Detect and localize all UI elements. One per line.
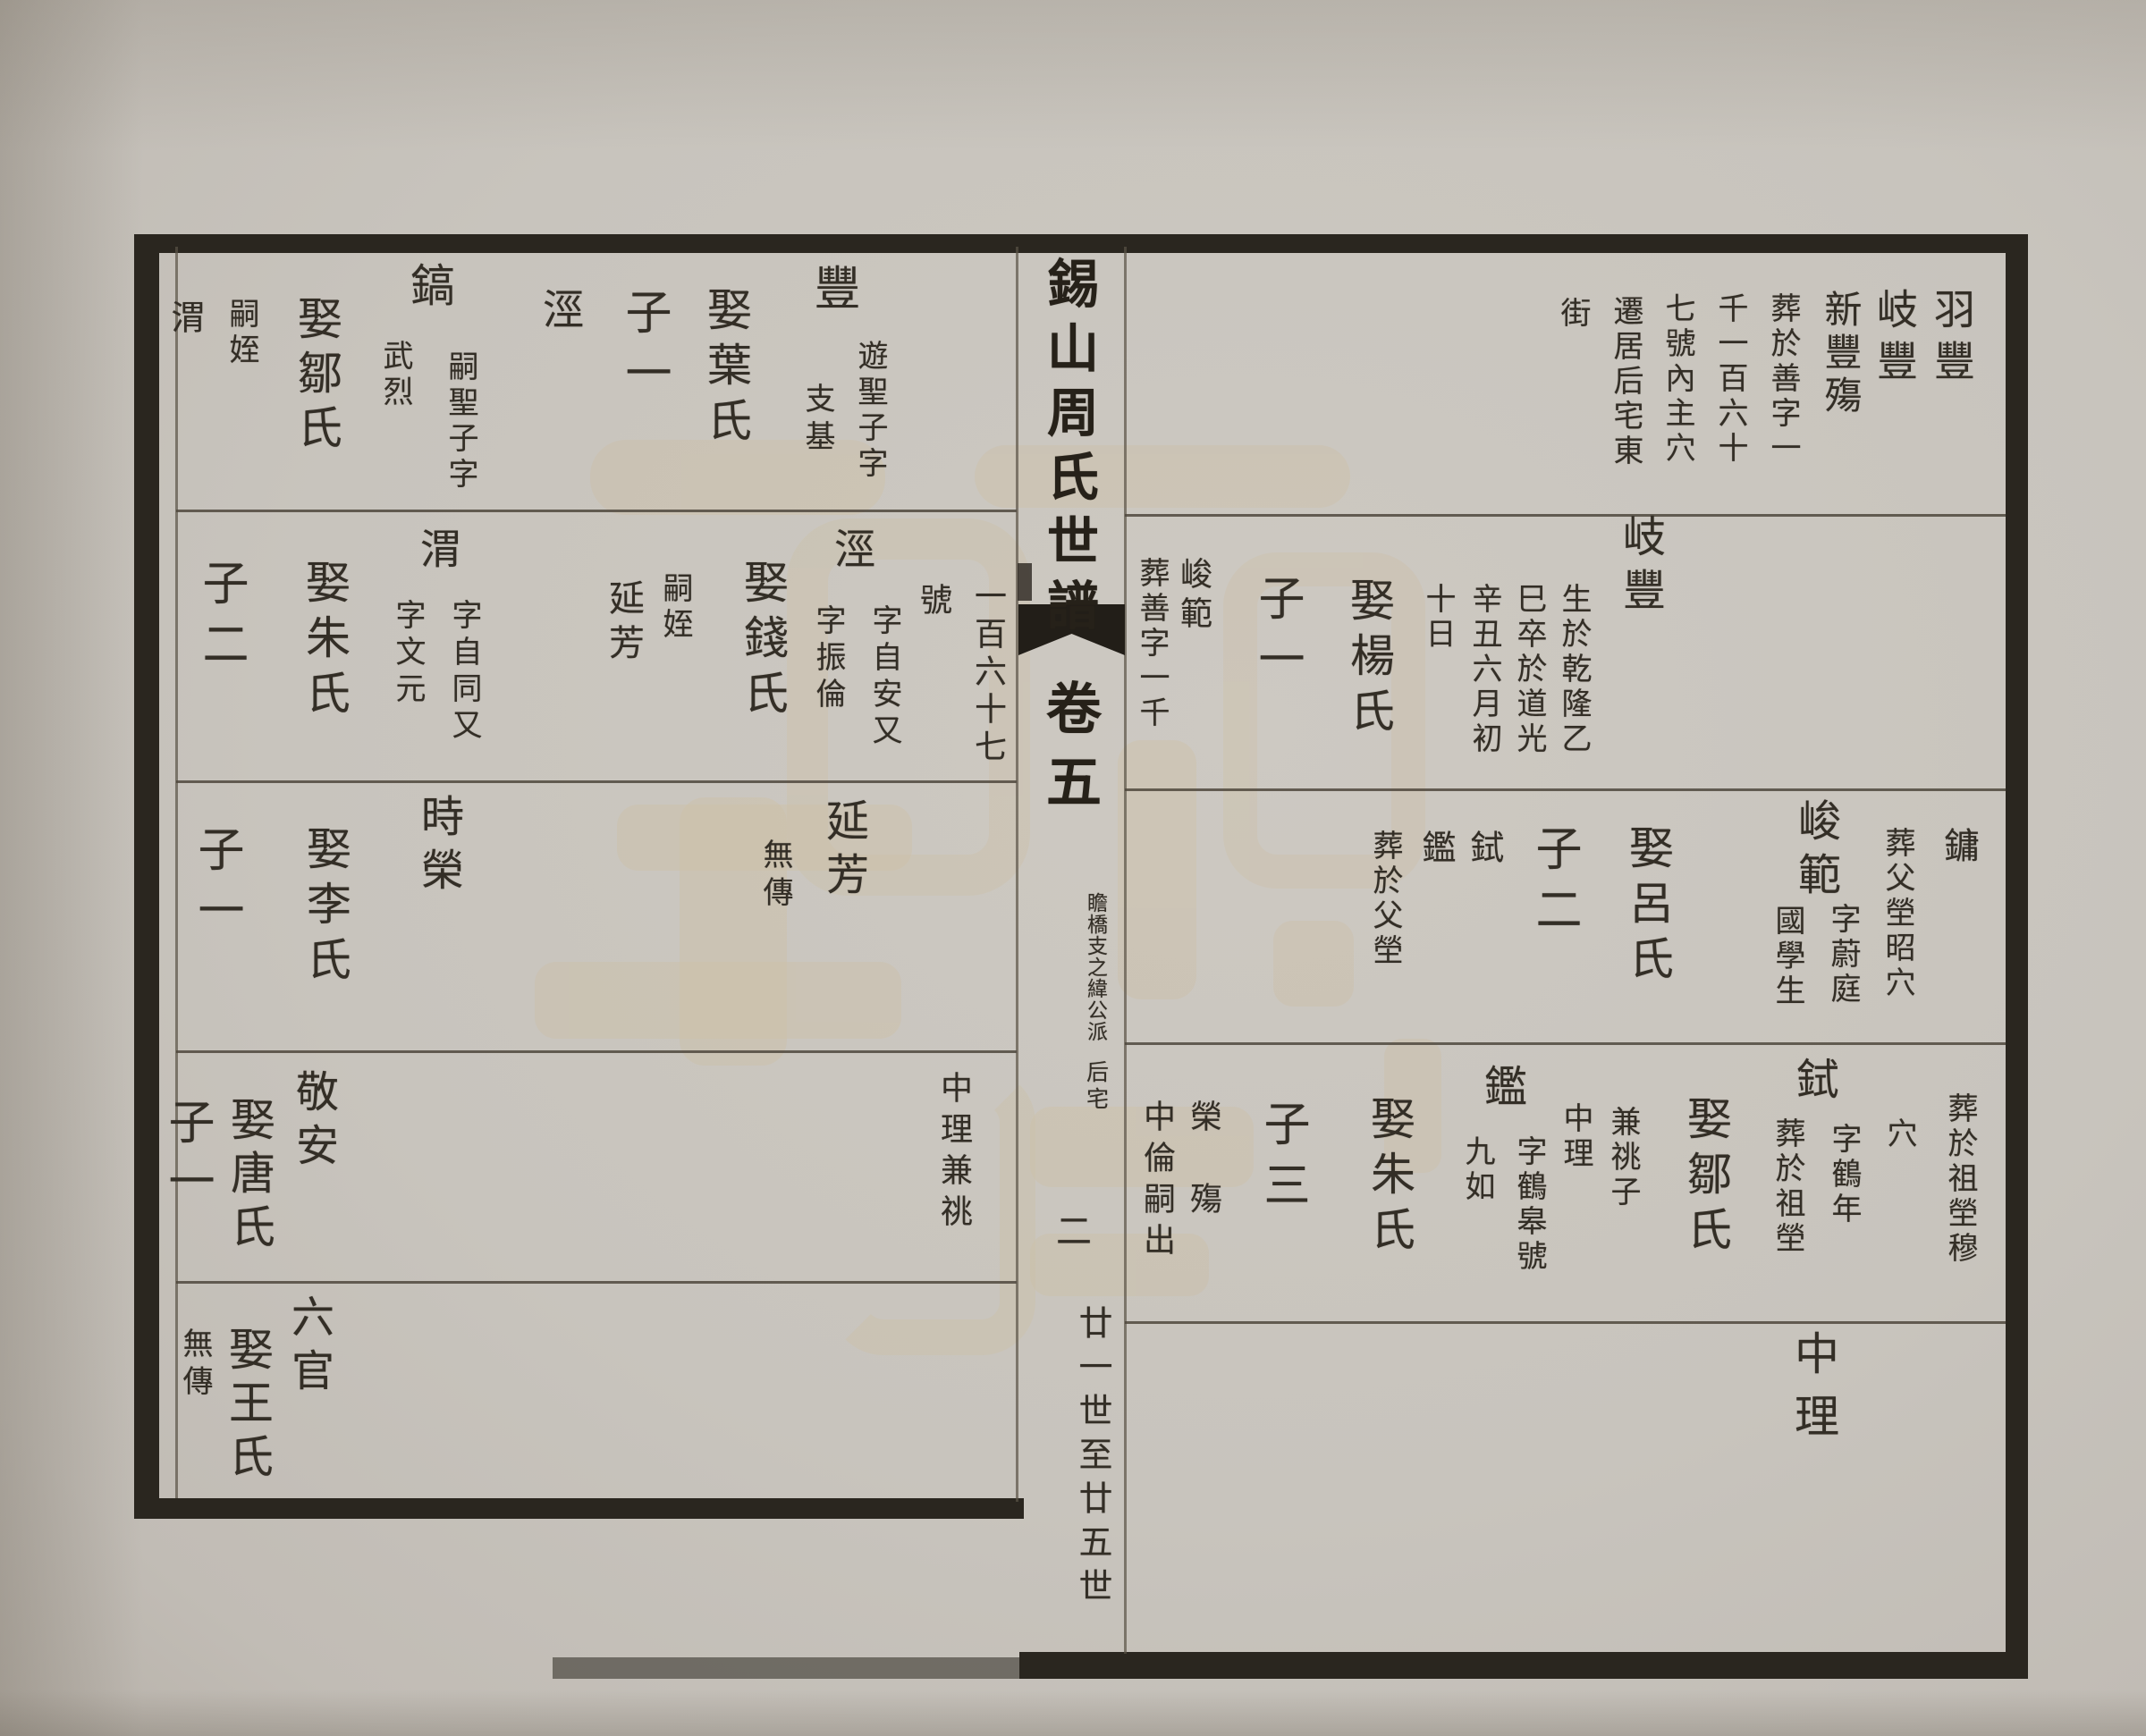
left-text-column-6: 鎬 (407, 262, 452, 307)
right-text-column-0: 羽豐 (1931, 288, 1972, 392)
right-row-divider-3 (1125, 1042, 2006, 1045)
left-text-column-13: 字自安又 (868, 604, 899, 751)
left-text-column-24: 無傳 (759, 839, 790, 914)
right-text-column-18: 葬父塋昭穴 (1881, 827, 1912, 1001)
left-row-divider-4 (176, 1281, 1017, 1284)
right-row-divider-4 (1125, 1321, 2006, 1324)
left-text-column-1: 遊聖子字 (854, 340, 884, 483)
left-text-column-8: 武烈 (379, 340, 410, 411)
left-text-column-34: 無傳 (179, 1327, 209, 1403)
right-text-column-31: 葬於祖塋 (1771, 1117, 1802, 1257)
spine-text-column-6: 一百六十七 (972, 579, 1004, 767)
right-text-column-21: 國學生 (1771, 905, 1802, 1009)
left-text-column-31: 子一 (163, 1098, 209, 1216)
right-text-column-20: 字蔚庭 (1827, 903, 1857, 1007)
left-text-column-5: 涇 (539, 288, 580, 329)
spine-text-column-0: 錫山周氏世譜 (1042, 257, 1094, 643)
right-text-column-7: 街 (1557, 297, 1587, 327)
genealogy-book-spread: 錫山周氏世譜卷五瞻橋支之緯公派后宅二廿一世至廿五世一百六十七號 豐遊聖子字支基娶… (0, 0, 2146, 1736)
left-text-column-32: 六官 (286, 1294, 329, 1402)
right-text-column-39: 子三 (1258, 1100, 1305, 1221)
left-text-column-0: 豐 (808, 264, 855, 310)
right-text-column-37: 九如 (1461, 1135, 1491, 1205)
spine-left-rule (1016, 247, 1018, 1502)
right-text-column-19: 峻範 (1793, 798, 1836, 906)
right-text-column-5: 七號內主穴 (1661, 292, 1692, 467)
left-text-column-27: 子一 (192, 825, 239, 947)
right-text-column-33: 兼祧子 (1607, 1106, 1637, 1210)
spine-text-column-1: 卷五 (1040, 679, 1095, 826)
left-text-column-21: 娶朱氏 (302, 559, 347, 725)
right-text-column-12: 十日 (1422, 583, 1452, 653)
left-text-column-7: 嗣聖子字 (444, 350, 475, 493)
right-text-column-17: 鏞 (1940, 827, 1976, 863)
right-text-column-9: 生於乾隆乙 (1558, 583, 1588, 757)
right-text-column-40: 榮殤 (1187, 1100, 1220, 1264)
left-text-column-29: 敬安 (291, 1069, 334, 1176)
left-text-column-15: 娶錢氏 (740, 559, 785, 725)
right-text-column-36: 字鶴皋號 (1513, 1135, 1543, 1275)
right-text-column-14: 子一 (1253, 574, 1299, 695)
left-text-column-3: 娶葉氏 (704, 286, 748, 452)
right-text-column-6: 遷居后宅東 (1609, 295, 1640, 469)
left-text-column-4: 子一 (620, 288, 666, 409)
left-row-divider-2 (176, 780, 1017, 783)
left-page-inner-left-line (175, 247, 178, 1509)
left-page-bottom-border (134, 1498, 1024, 1519)
right-text-column-29: 鉽 (1791, 1057, 1834, 1100)
right-text-column-35: 鑑 (1479, 1064, 1522, 1107)
right-row-divider-1 (1125, 514, 2006, 517)
frame-top-border (139, 234, 2027, 253)
top-paper-shadow (0, 0, 2146, 152)
right-text-column-13: 娶楊氏 (1347, 577, 1391, 743)
left-text-column-11: 渭 (167, 299, 201, 333)
right-text-column-24: 鉽 (1466, 830, 1500, 864)
frame-left-border (134, 234, 159, 1518)
right-text-column-10: 巳卒於道光 (1513, 583, 1543, 757)
left-text-column-23: 延芳 (821, 798, 864, 906)
spine-text-column-3: 后宅 (1085, 1060, 1107, 1114)
left-text-column-9: 娶鄒氏 (294, 295, 339, 459)
left-text-column-10: 嗣姪 (225, 298, 256, 369)
left-text-column-28: 中理兼祧 (938, 1071, 970, 1235)
right-row-divider-2 (1125, 788, 2006, 791)
left-text-column-14: 字振倫 (812, 604, 842, 714)
right-text-column-32: 娶鄒氏 (1684, 1095, 1728, 1261)
right-text-column-15: 峻範 (1178, 557, 1210, 636)
spine-text-column-7: 號 (917, 583, 950, 615)
right-text-column-38: 娶朱氏 (1367, 1095, 1412, 1261)
left-text-column-22: 子二 (197, 559, 243, 680)
right-text-column-34: 中理 (1559, 1102, 1590, 1172)
right-text-column-23: 子二 (1530, 824, 1576, 946)
spine-right-rule (1124, 247, 1127, 1654)
left-text-column-26: 娶李氏 (303, 825, 348, 991)
right-page-bottom-border (1019, 1652, 2028, 1679)
right-text-column-25: 鑑 (1418, 830, 1452, 864)
bottom-paper-shadow (0, 1690, 2146, 1736)
right-text-column-42: 中理 (1791, 1330, 1836, 1455)
left-text-column-17: 延芳 (605, 579, 641, 669)
left-text-column-30: 娶唐氏 (227, 1096, 272, 1257)
left-text-column-33: 娶王氏 (225, 1326, 270, 1487)
left-text-column-19: 字自同又 (448, 599, 478, 746)
left-row-divider-1 (176, 510, 1017, 512)
right-text-column-28: 穴 (1883, 1117, 1914, 1148)
left-row-divider-3 (176, 1050, 1017, 1053)
right-text-column-22: 娶呂氏 (1626, 824, 1670, 990)
right-text-column-11: 辛丑六月初 (1468, 583, 1499, 757)
right-text-column-16: 葬善字一千 (1136, 557, 1166, 731)
spine-text-column-5: 廿一世至廿五世 (1075, 1305, 1109, 1612)
right-text-column-27: 葬於祖塋穆 (1944, 1092, 1974, 1267)
right-text-column-26: 葬於父塋 (1369, 830, 1399, 969)
right-text-column-30: 字鶴年 (1828, 1123, 1858, 1227)
left-text-column-12: 涇 (831, 527, 872, 569)
binding-shadow-band (553, 1657, 1027, 1679)
left-text-column-20: 字文元 (392, 599, 422, 709)
right-text-column-41: 中倫嗣出 (1141, 1100, 1173, 1264)
spine-text-column-4: 二 (1052, 1212, 1088, 1248)
right-text-column-3: 葬於善字一 (1767, 292, 1797, 467)
frame-right-border (2006, 234, 2028, 1679)
left-paper-edge-shadow (0, 0, 143, 1736)
spine-text-column-2: 瞻橋支之緯公派 (1086, 892, 1106, 1042)
left-text-column-2: 支基 (801, 383, 832, 458)
left-text-column-25: 時榮 (416, 794, 459, 901)
left-text-column-18: 渭 (417, 527, 458, 569)
right-text-column-4: 千一百六十 (1714, 292, 1745, 467)
left-text-column-16: 嗣姪 (659, 572, 689, 644)
right-text-column-2: 新豐殤 (1821, 290, 1858, 418)
spine-ink-smudge (1018, 563, 1032, 601)
right-text-column-1: 岐豐 (1873, 288, 1914, 392)
right-text-column-8: 岐豐 (1618, 514, 1660, 621)
